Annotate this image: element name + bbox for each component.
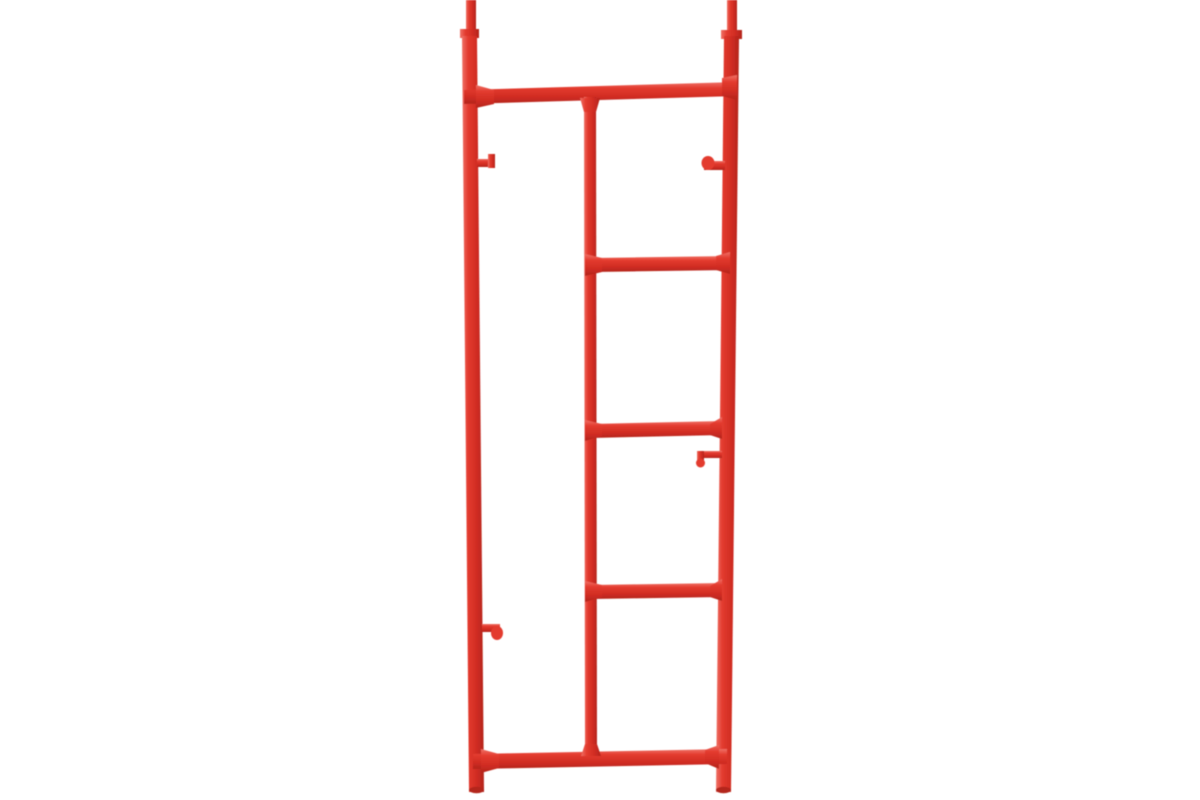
weld-rung-2-left <box>585 420 602 441</box>
left-spigot <box>466 0 476 31</box>
lower-left-pin-knob <box>491 626 503 640</box>
right-post-bottom-cap <box>716 787 731 793</box>
mid-right-pin-knob <box>696 459 705 468</box>
left-post-bottom-cap <box>469 787 484 793</box>
weld-middle-post-bottom <box>581 744 601 756</box>
rung-2 <box>591 421 722 438</box>
bottom-bar <box>473 749 727 769</box>
scaffold-frame-image <box>0 0 1200 800</box>
weld-bottom-bar-left <box>481 749 499 773</box>
weld-rung-1-right <box>716 252 730 274</box>
weld-rung-3-right <box>710 579 722 601</box>
weld-top-bar-left <box>476 85 494 108</box>
weld-middle-post-top <box>580 98 600 112</box>
rung-1 <box>591 256 730 272</box>
upper-left-pin-cap <box>488 154 495 168</box>
top-bar <box>464 82 737 104</box>
weld-top-bar-right <box>722 75 737 100</box>
product-photo-canvas <box>0 0 1200 800</box>
rung-3 <box>591 583 722 599</box>
upper-right-pin-knob <box>702 156 715 170</box>
right-post <box>716 36 739 792</box>
weld-rung-1-left <box>585 254 602 276</box>
weld-bottom-bar-right <box>705 745 719 769</box>
right-spigot <box>727 0 737 32</box>
weld-rung-2-right <box>710 417 722 439</box>
left-post <box>462 36 484 792</box>
scaffold-frame-parts <box>460 0 742 793</box>
